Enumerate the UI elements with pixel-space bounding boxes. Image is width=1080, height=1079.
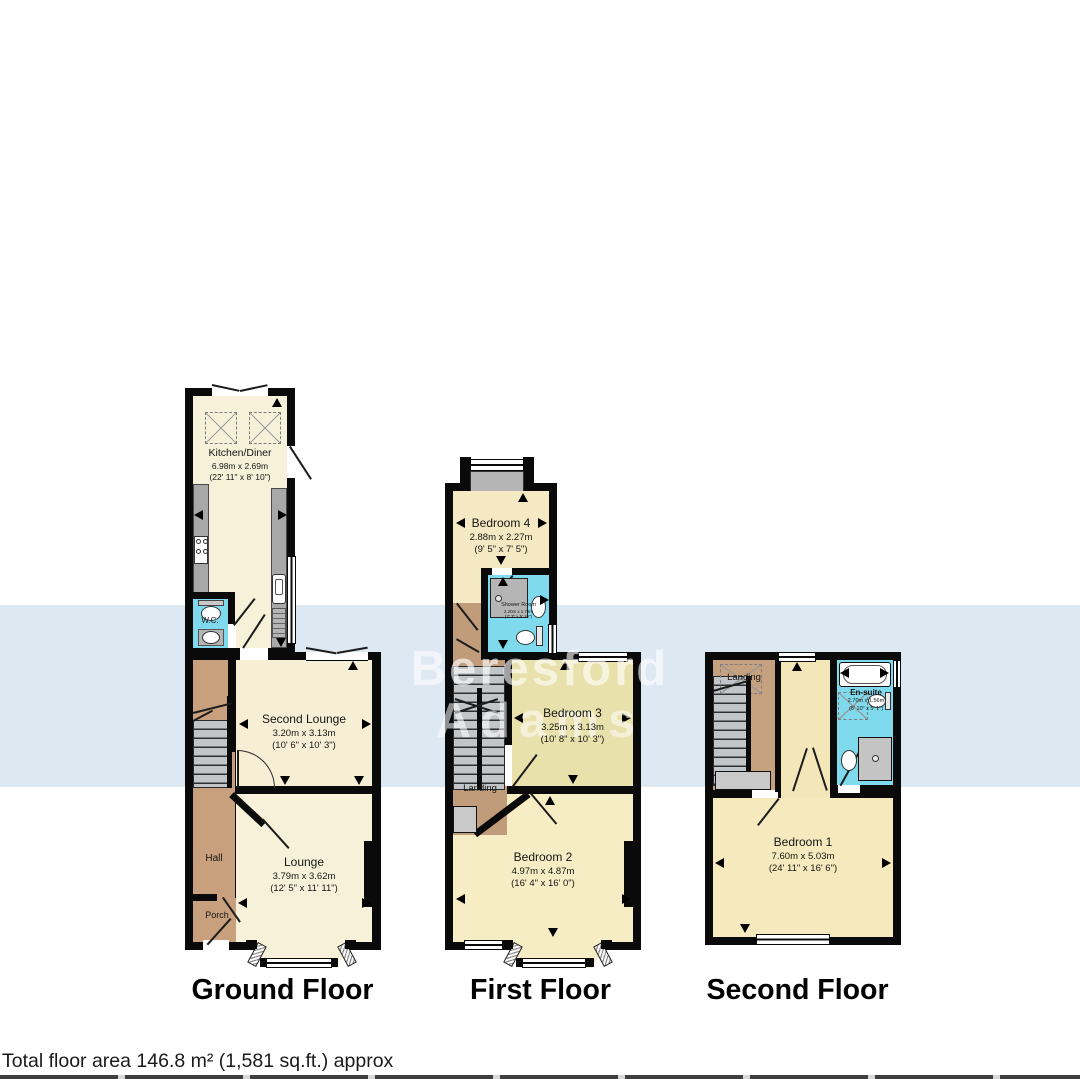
dimension-arrow [238, 898, 247, 908]
dimension-arrow [840, 668, 849, 678]
hall-label: Hall [193, 852, 235, 865]
bedroom3-door-gap [505, 745, 512, 786]
cupboard [453, 806, 477, 833]
dimension-arrow [792, 662, 802, 671]
dimension-arrow [498, 577, 508, 586]
wc-door-gap [228, 624, 236, 648]
dimension-arrow [272, 398, 282, 407]
toilet-icon [516, 630, 535, 645]
bay-front-window [266, 958, 332, 968]
landing-second-label: Landing [707, 672, 781, 684]
dimension-arrow [276, 638, 286, 647]
wc-label: W.C. [193, 616, 227, 626]
sink-bowl-icon [275, 579, 283, 595]
bedroom4-bay-window [470, 459, 524, 471]
dimension-arrow [362, 898, 371, 908]
dimension-arrow [194, 510, 203, 520]
room-bedroom4-nook [453, 568, 481, 603]
dimension-arrow [354, 776, 364, 785]
bedroom4-label: Bedroom 4 2.88m x 2.27m (9' 5" x 7' 5") [453, 516, 549, 556]
second-floor-title: Second Floor [685, 974, 910, 1007]
basin-icon [202, 631, 220, 644]
toilet-cistern-icon [536, 626, 543, 646]
rooflight-icon [205, 412, 237, 444]
rooflight-icon [249, 412, 281, 444]
dimension-arrow [568, 775, 578, 784]
ensuite-label: En-suite 2.70m x 1.56m (8' 10" x 5' 1") [830, 688, 902, 713]
bedroom2-label: Bedroom 2 4.97m x 4.87m (16' 4" x 16' 0"… [453, 850, 633, 890]
porch-wall [193, 894, 217, 901]
dimension-arrow [498, 640, 508, 649]
dimension-arrow [278, 510, 287, 520]
hob-ring-icon [196, 539, 201, 544]
cupboard [715, 771, 771, 790]
total-floor-area: Total floor area 146.8 m² (1,581 sq.ft.)… [2, 1050, 393, 1073]
shower-window [548, 624, 557, 654]
bay-post [502, 940, 513, 949]
dimension-arrow [560, 661, 570, 670]
dimension-arrow [496, 556, 506, 565]
basin-icon [841, 750, 857, 771]
bay-post [345, 940, 356, 949]
shower-door-gap [492, 568, 512, 575]
bay-post [246, 940, 257, 949]
kitchen-label: Kitchen/Diner 6.98m x 2.69m (22' 11" x 8… [193, 447, 287, 483]
dimension-arrow [622, 894, 631, 904]
bay-post [601, 940, 612, 949]
second-lounge-label: Second Lounge 3.20m x 3.13m (10' 6" x 10… [236, 712, 372, 752]
bedroom2-window [464, 940, 504, 950]
dimension-arrow [348, 661, 358, 670]
bedroom1-label: Bedroom 1 7.60m x 5.03m (24' 11" x 16' 6… [713, 835, 893, 875]
ground-floor-title: Ground Floor [160, 974, 405, 1007]
shower-room-wall [481, 568, 488, 660]
hob-ring-icon [203, 539, 208, 544]
dimension-arrow [456, 894, 465, 904]
bedroom3-label: Bedroom 3 3.25m x 3.13m (10' 8" x 10' 3"… [512, 706, 633, 746]
shower-drain-icon [495, 595, 502, 602]
ensuite-window [893, 660, 901, 688]
hob-ring-icon [203, 549, 208, 554]
drainer-icon [272, 608, 286, 638]
porch-label: Porch [193, 910, 241, 922]
dimension-arrow [545, 796, 555, 805]
dimension-arrow [280, 776, 290, 785]
ground-stairs [193, 720, 231, 788]
bottom-banner-edge [0, 1075, 1080, 1079]
second-floor-top-window [778, 652, 816, 662]
shower-drain-icon [872, 755, 879, 762]
stair-stringer [227, 696, 232, 788]
hob-ring-icon [196, 549, 201, 554]
dimension-arrow [548, 928, 558, 937]
ensuite-wall [830, 660, 837, 785]
lounge-label: Lounge 3.79m x 3.62m (12' 5" x 11' 11") [236, 855, 372, 895]
dimension-arrow [518, 493, 528, 502]
dimension-arrow [740, 924, 750, 933]
floorplan-page: Kitchen/Diner 6.98m x 2.69m (22' 11" x 8… [0, 0, 1080, 1079]
shower-label: Shower Room 2.20m x 1.79m (7' 3" x 5' 10… [488, 602, 549, 620]
bedroom1-window [756, 934, 830, 945]
dimension-arrow [880, 668, 889, 678]
landing-first-label: Landing [447, 783, 513, 795]
bedroom3-window [578, 652, 628, 662]
ensuite-door-gap [838, 785, 860, 793]
first-floor-title: First Floor [428, 974, 653, 1007]
kitchen-window [287, 556, 296, 644]
bay-front-window [522, 958, 586, 968]
